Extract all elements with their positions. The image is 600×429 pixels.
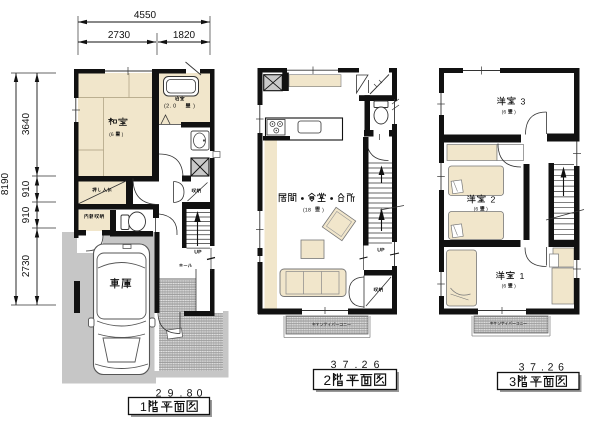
svg-text:2730: 2730 [108,30,131,41]
svg-text:): ) [193,104,195,110]
svg-text:3640: 3640 [21,112,32,135]
svg-text:3: 3 [509,375,516,389]
svg-text:(6: (6 [109,132,114,138]
svg-text:(6: (6 [502,284,507,290]
svg-text:910: 910 [21,206,32,223]
svg-text:2: 2 [491,195,496,205]
svg-text:UP: UP [377,248,385,254]
svg-text:): ) [514,110,516,116]
svg-text:4550: 4550 [134,10,157,21]
svg-text:): ) [322,208,324,214]
svg-text:2730: 2730 [21,254,32,277]
svg-text:): ) [514,284,516,290]
svg-text:2: 2 [324,373,332,388]
svg-text:1820: 1820 [173,30,196,41]
svg-text:.: . [541,362,544,374]
svg-text:2: 2 [548,362,554,374]
svg-text:3: 3 [521,97,526,107]
svg-text:910: 910 [21,180,32,197]
svg-text:(18: (18 [303,208,311,214]
svg-text:1: 1 [520,271,525,281]
svg-text:8190: 8190 [0,172,11,195]
svg-text:3: 3 [519,362,525,374]
svg-text:1: 1 [140,400,147,414]
svg-text:6: 6 [558,362,564,374]
svg-text:7: 7 [530,362,536,374]
svg-text:(2. 0: (2. 0 [164,104,177,110]
svg-text:(6: (6 [502,110,507,116]
svg-text:UP: UP [194,250,202,256]
svg-text:(6: (6 [474,207,479,213]
